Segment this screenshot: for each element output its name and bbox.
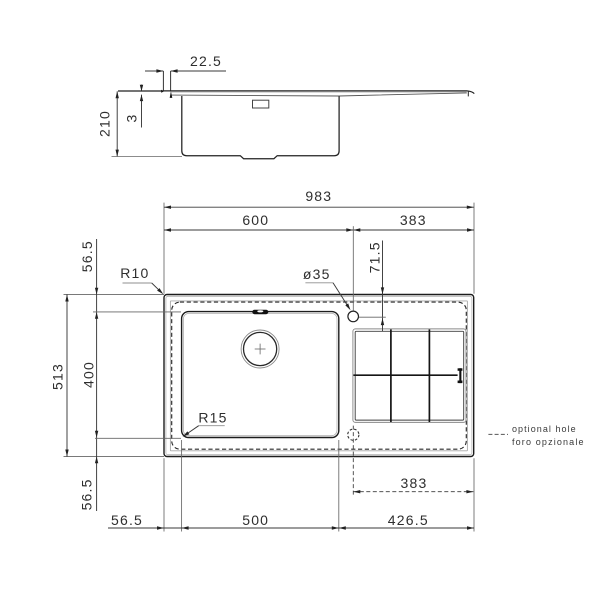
svg-text:R15: R15 [198,410,227,426]
svg-text:56.5: 56.5 [79,478,95,510]
svg-text:foro opzionale: foro opzionale [512,437,585,447]
svg-text:optional hole: optional hole [512,424,577,434]
svg-text:56.5: 56.5 [111,512,143,528]
svg-text:983: 983 [305,188,332,204]
svg-text:383: 383 [401,475,428,491]
svg-text:383: 383 [400,212,427,228]
svg-text:R10: R10 [120,265,149,281]
svg-text:56.5: 56.5 [79,240,95,272]
svg-text:426.5: 426.5 [388,512,429,528]
svg-text:22.5: 22.5 [190,53,222,69]
svg-text:210: 210 [96,110,112,137]
svg-text:513: 513 [49,363,65,390]
svg-text:ø35: ø35 [303,266,331,282]
svg-text:400: 400 [81,361,97,388]
svg-text:3: 3 [124,114,140,123]
svg-text:71.5: 71.5 [367,241,383,273]
svg-text:500: 500 [242,512,269,528]
svg-text:600: 600 [242,212,269,228]
